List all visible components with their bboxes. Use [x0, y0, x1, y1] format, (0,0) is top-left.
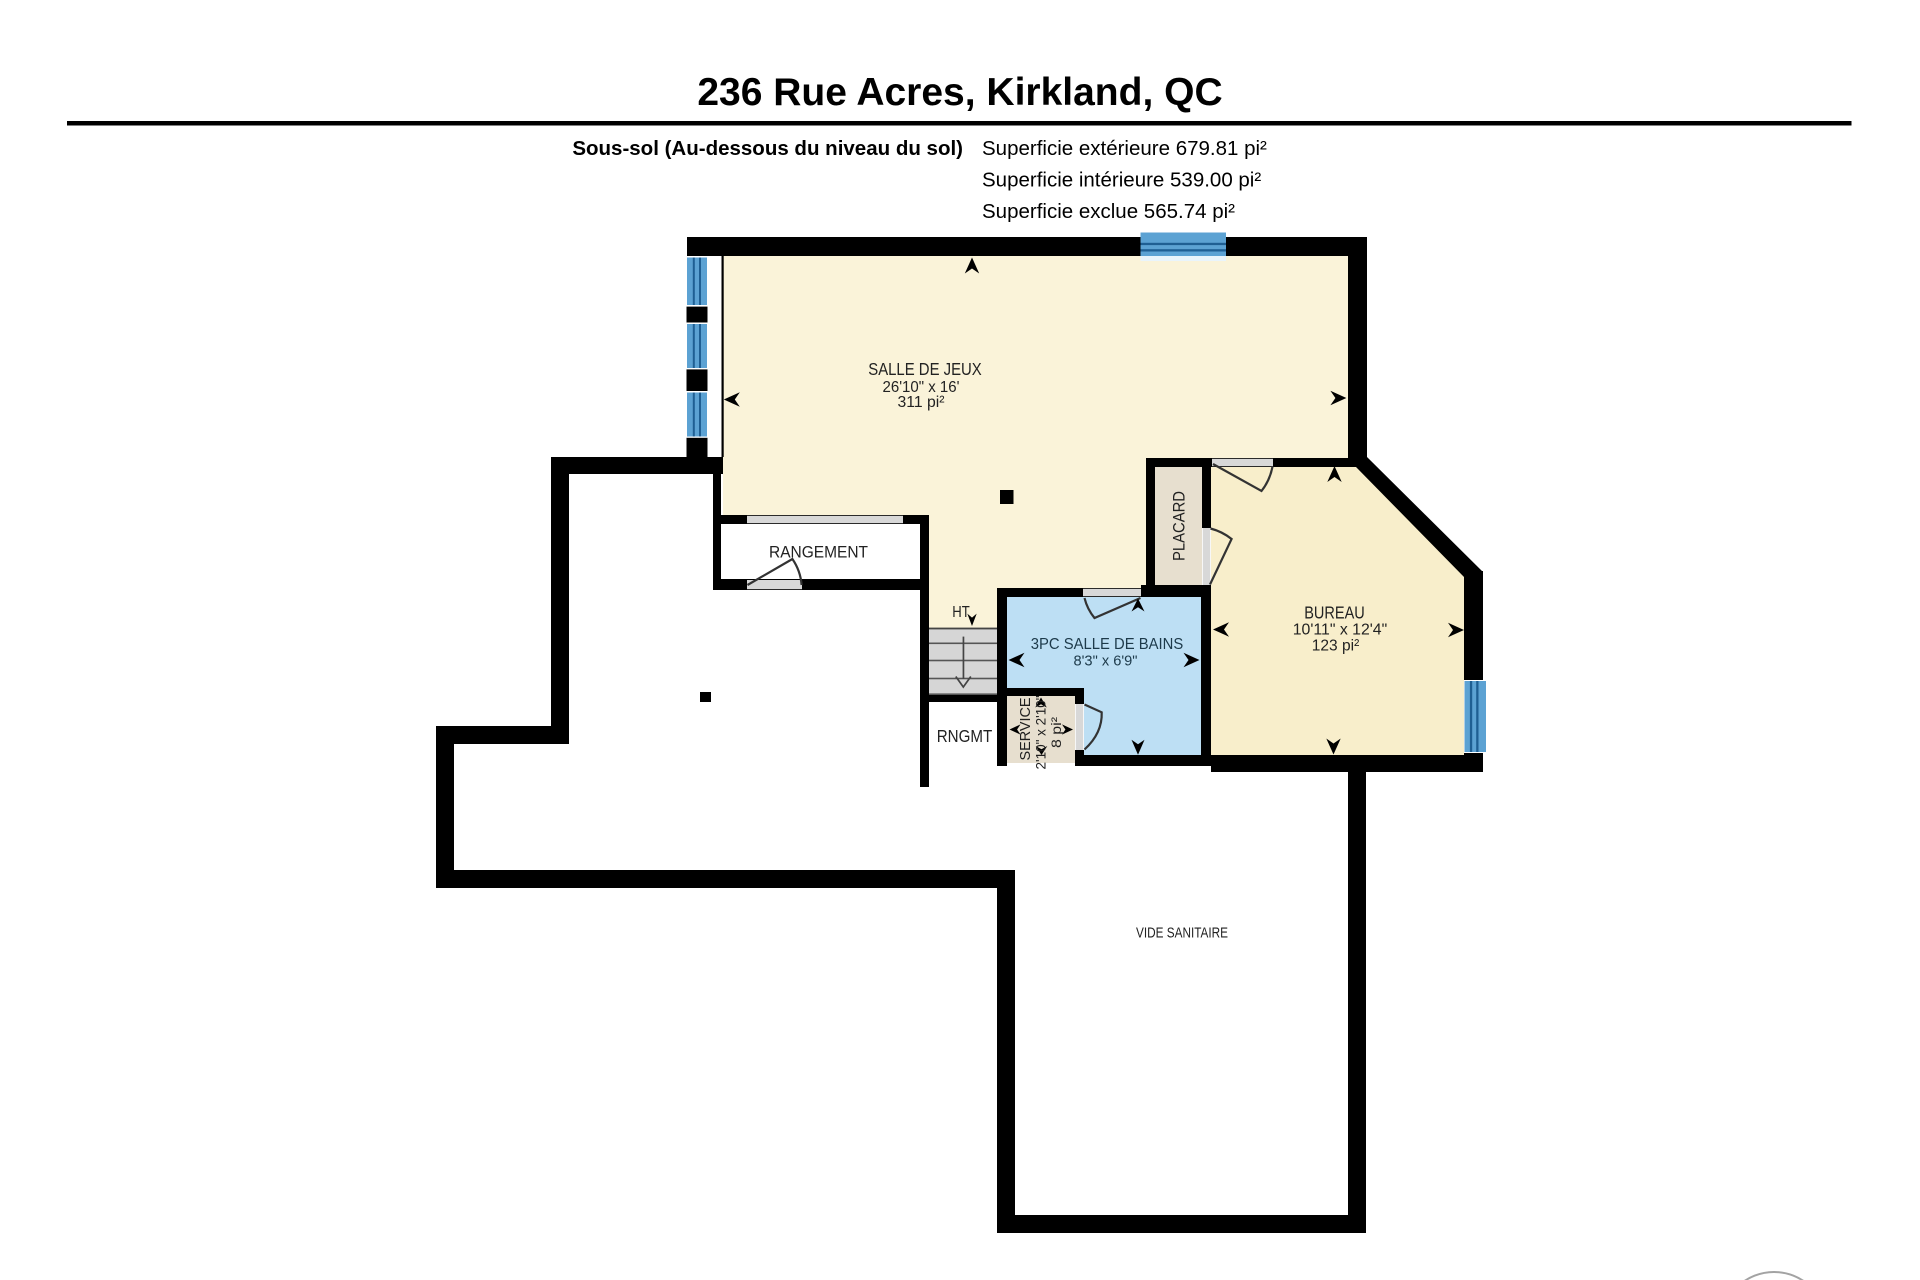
svg-text:Superficie exclue 565.74 pi²: Superficie exclue 565.74 pi²: [982, 200, 1235, 223]
svg-text:BUREAU: BUREAU: [1304, 603, 1365, 623]
svg-text:SERVICE: SERVICE: [1017, 698, 1034, 761]
svg-text:RNGMT: RNGMT: [937, 726, 993, 746]
svg-text:Sous-sol (Au-dessous du niveau: Sous-sol (Au-dessous du niveau du sol): [572, 137, 963, 160]
svg-text:RANGEMENT: RANGEMENT: [769, 544, 868, 562]
svg-text:VIDE SANITAIRE: VIDE SANITAIRE: [1136, 926, 1228, 942]
svg-text:PLACARD: PLACARD: [1171, 491, 1189, 561]
svg-text:HT: HT: [952, 604, 970, 621]
svg-text:8'3" x 6'9": 8'3" x 6'9": [1074, 654, 1138, 670]
svg-text:SALLE DE JEUX: SALLE DE JEUX: [868, 359, 982, 379]
svg-text:Superficie extérieure 679.81 p: Superficie extérieure 679.81 pi²: [982, 137, 1267, 160]
svg-text:236 Rue Acres, Kirkland, QC: 236 Rue Acres, Kirkland, QC: [697, 71, 1222, 114]
svg-text:311 pi²: 311 pi²: [898, 394, 946, 411]
svg-text:Superficie intérieure 539.00 p: Superficie intérieure 539.00 pi²: [982, 169, 1261, 192]
svg-text:123 pi²: 123 pi²: [1312, 638, 1360, 655]
svg-text:2'10" x 2'10": 2'10" x 2'10": [1034, 695, 1049, 769]
svg-text:3PC SALLE DE BAINS: 3PC SALLE DE BAINS: [1031, 636, 1184, 653]
svg-text:10'11" x 12'4": 10'11" x 12'4": [1293, 622, 1388, 639]
svg-text:8 pi²: 8 pi²: [1049, 716, 1064, 748]
